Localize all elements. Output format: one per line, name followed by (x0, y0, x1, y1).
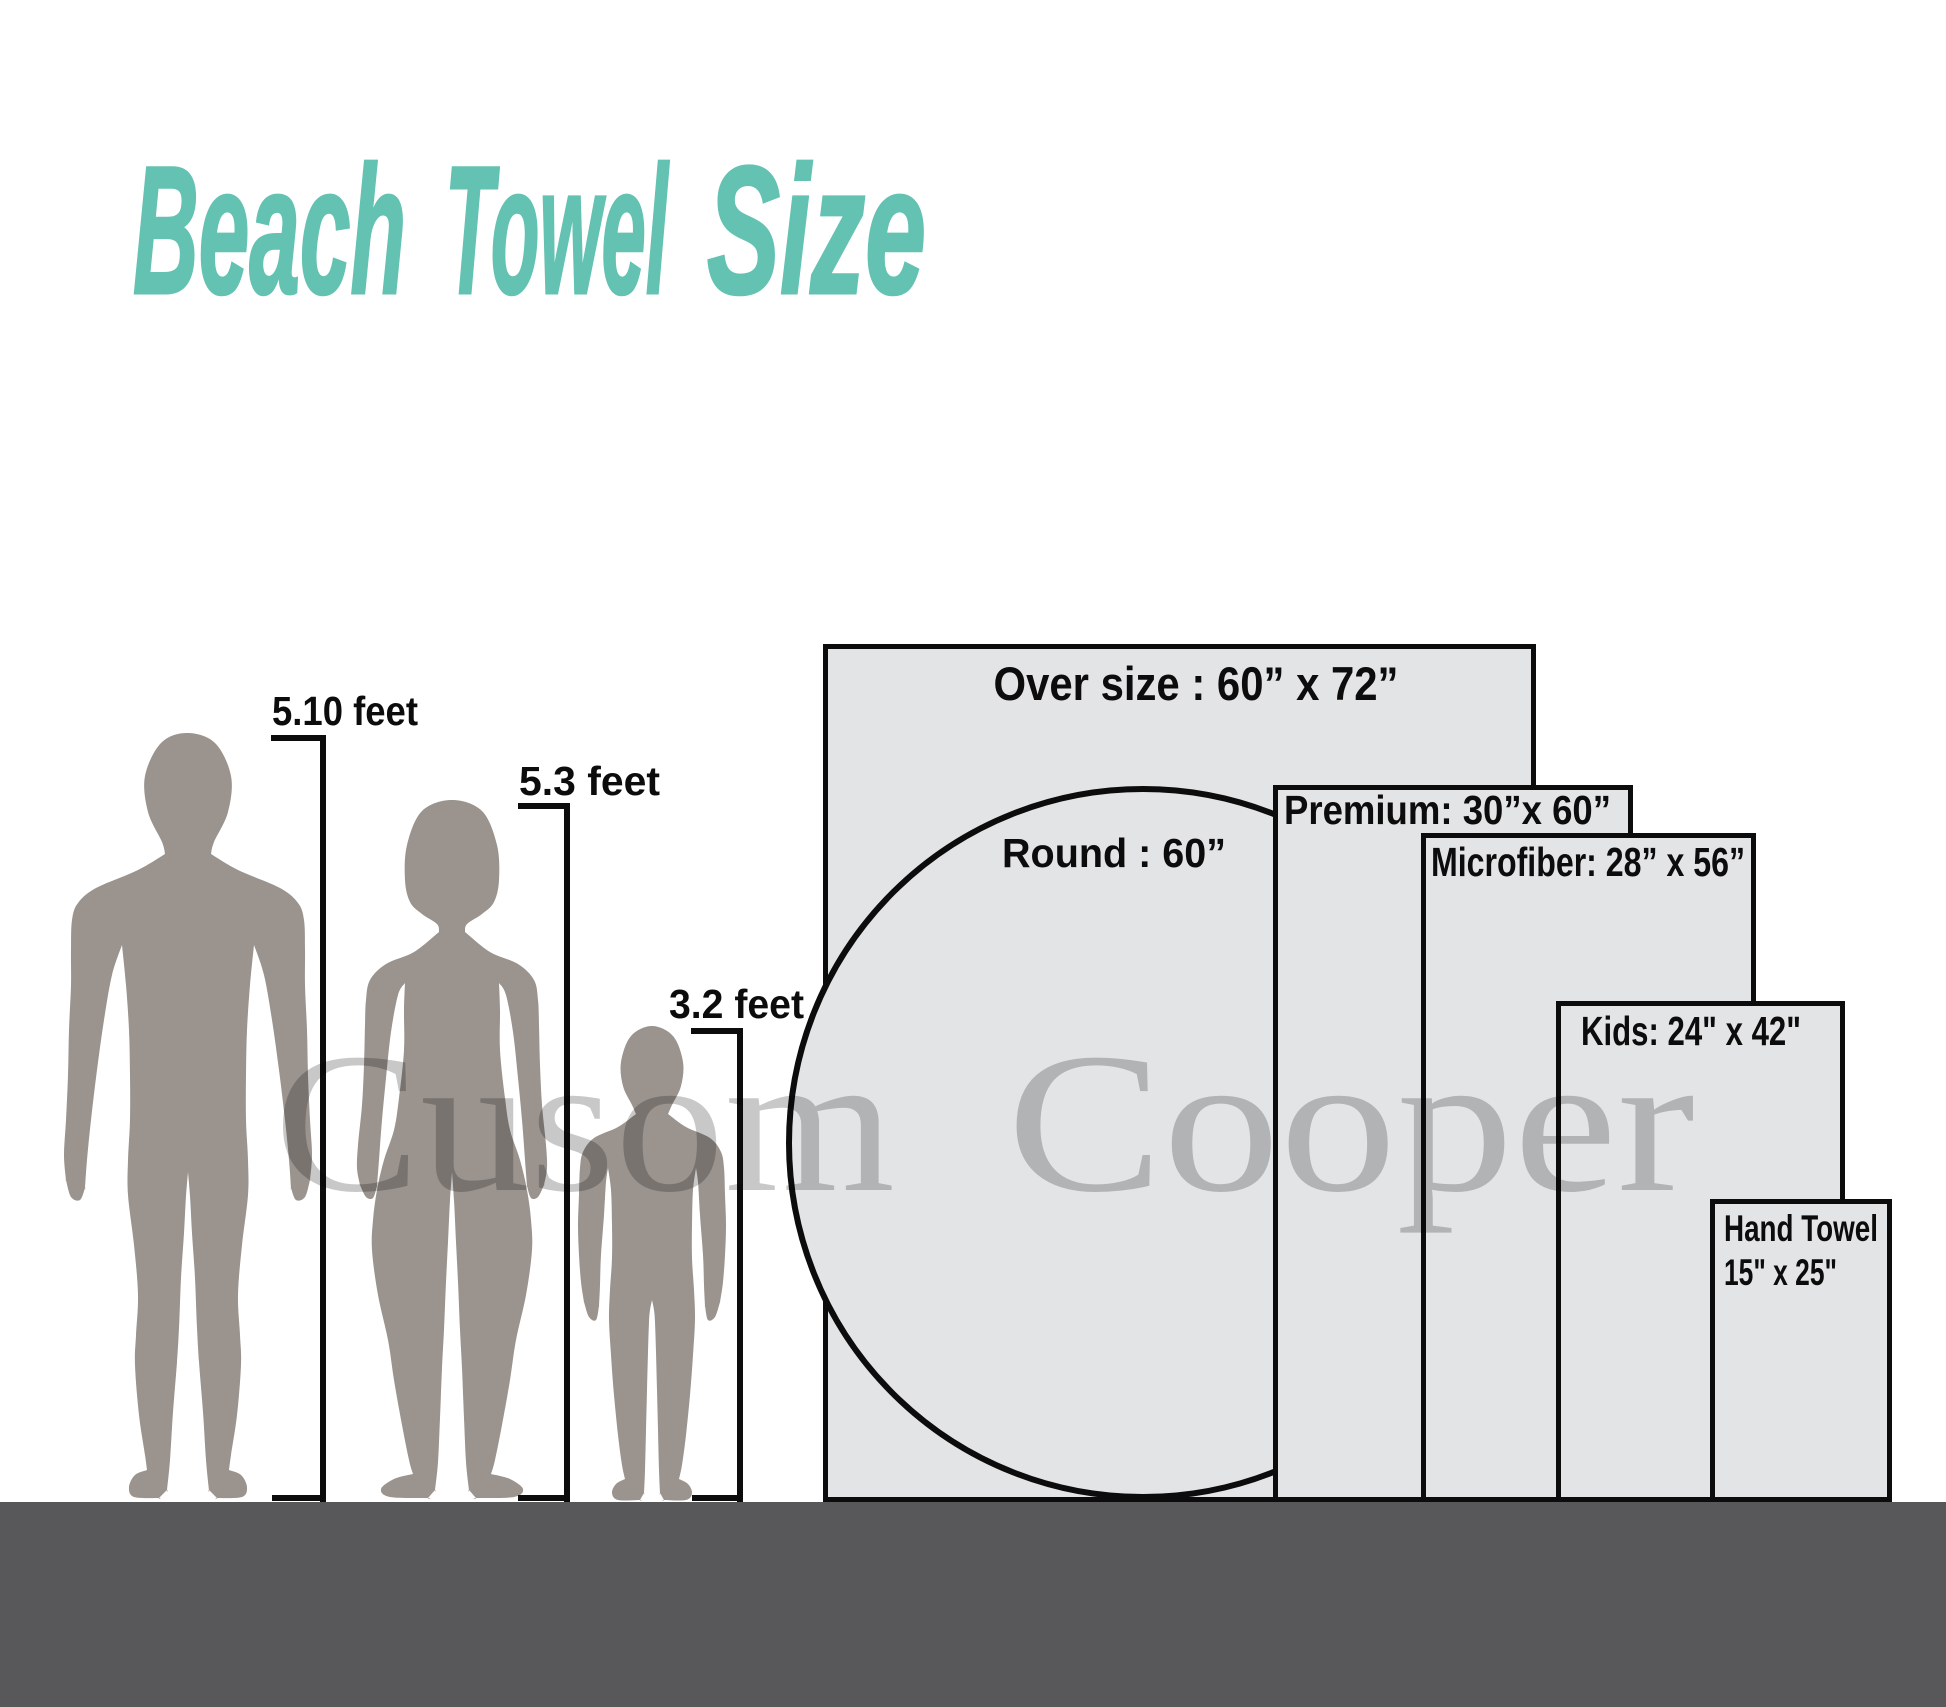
svg-text:Beach: Beach (133, 128, 406, 332)
svg-text:Towel: Towel (445, 128, 670, 332)
svg-text:Size: Size (707, 128, 926, 332)
svg-text:Cooper: Cooper (1007, 1013, 1695, 1234)
svg-text:Microfiber: 28” x 56”: Microfiber: 28” x 56” (1431, 839, 1745, 885)
svg-text:Premium: 30”x 60”: Premium: 30”x 60” (1284, 787, 1611, 833)
svg-text:5.3 feet: 5.3 feet (519, 758, 660, 804)
svg-text:5.10 feet: 5.10 feet (272, 688, 418, 734)
svg-text:Round : 60”: Round : 60” (1002, 830, 1226, 876)
svg-text:Over size : 60” x 72”: Over size : 60” x 72” (994, 657, 1399, 710)
svg-text:Hand Towel: Hand Towel (1724, 1208, 1878, 1249)
svg-text:Cusom: Cusom (274, 1013, 895, 1234)
svg-text:15" x 25": 15" x 25" (1724, 1252, 1837, 1293)
